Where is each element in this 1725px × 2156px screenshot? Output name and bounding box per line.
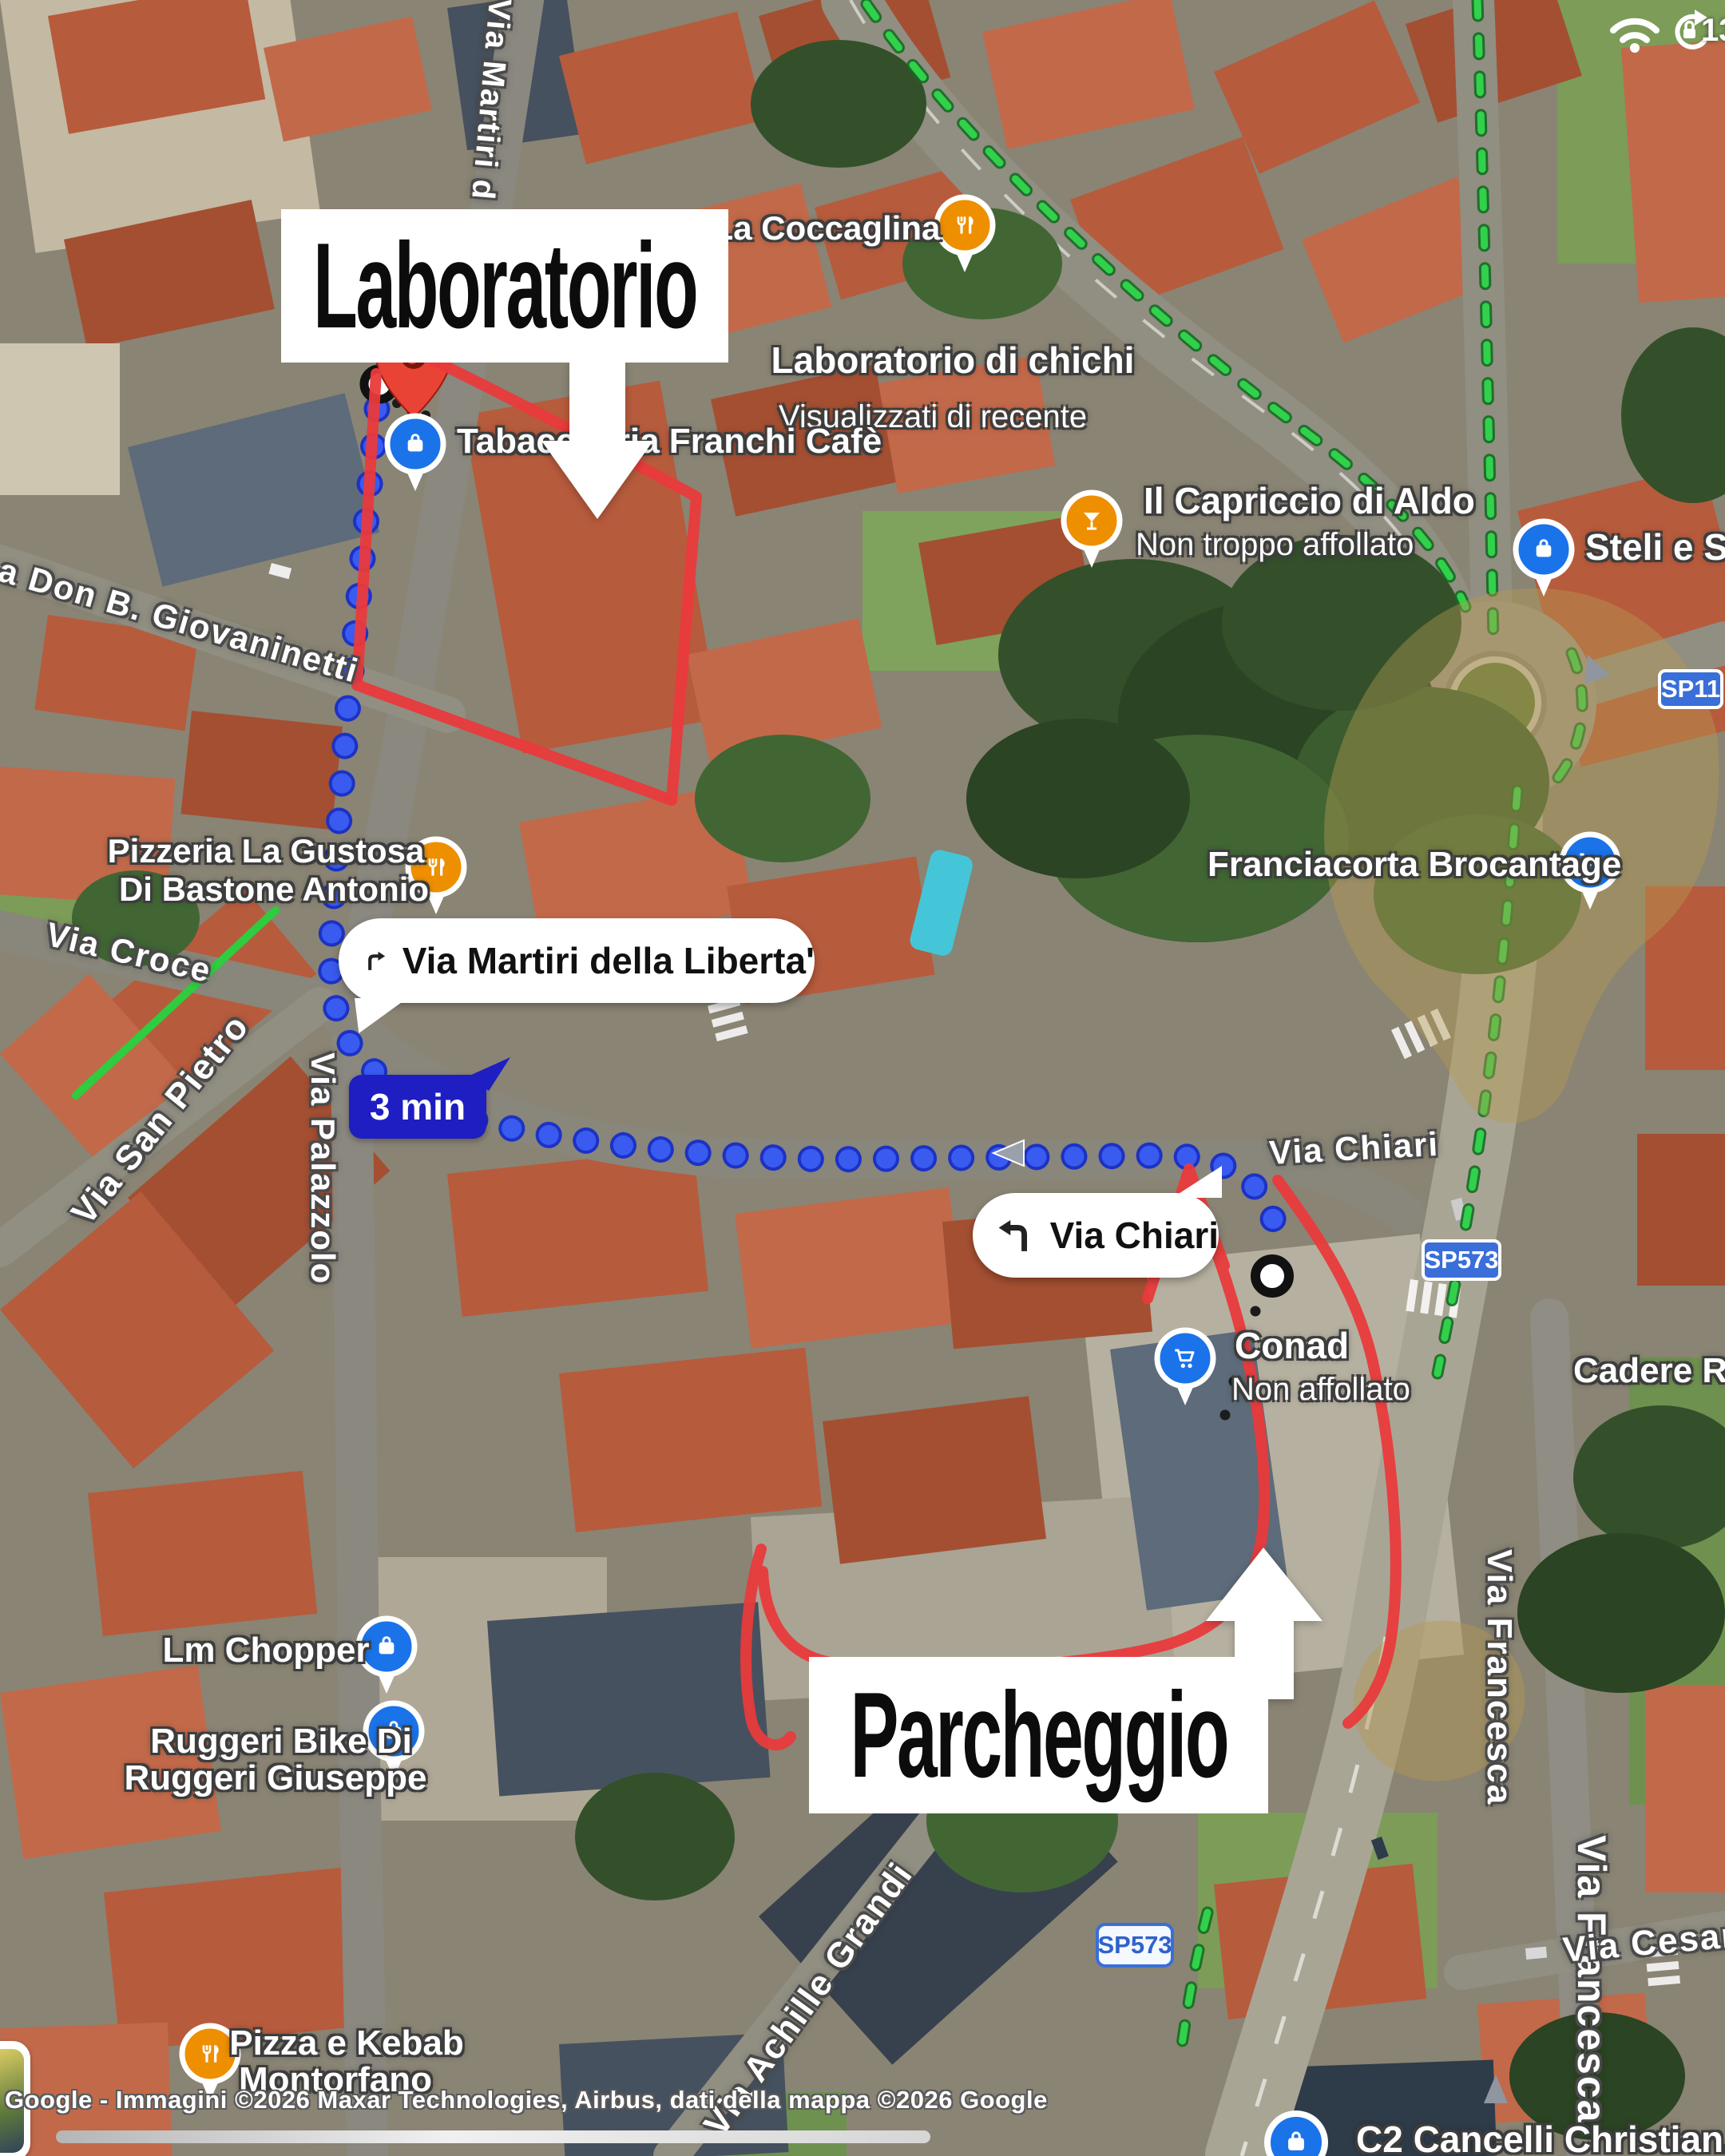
battery-percent: 13	[1701, 13, 1725, 49]
laboratorio-label-box: Laboratorio	[281, 209, 728, 363]
poi-lm-chopper[interactable]: Lm Chopper	[162, 1631, 369, 1671]
road-shield-sp11: SP11	[1658, 669, 1723, 709]
street-via-francesca-1: Via Francesca	[1479, 1549, 1519, 1805]
home-indicator[interactable]	[56, 2130, 930, 2143]
wifi-icon	[1613, 22, 1656, 53]
street-via-francesca-2: Via Francesca	[1568, 1835, 1615, 2123]
laboratorio-label: Laboratorio	[313, 216, 696, 356]
poi-pizzeria-line2[interactable]: Di Bastone Antonio	[119, 870, 429, 909]
road-arrow-south	[1484, 2075, 1508, 2103]
poi-franciacorta[interactable]: Franciacorta Brocantage	[1207, 845, 1621, 885]
street-via-palazzolo: Via Palazzolo	[303, 1052, 342, 1285]
poi-conad[interactable]: Conad	[1235, 1324, 1349, 1367]
poi-capriccio[interactable]: Il Capriccio di Aldo	[1144, 479, 1475, 522]
poi-steli-e-stili[interactable]: Steli e Stili	[1585, 525, 1725, 569]
shopping-icon-c2-cancelli[interactable]	[1260, 2106, 1332, 2156]
parcheggio-label: Parcheggio	[850, 1666, 1227, 1805]
road-shield-sp573-bottom: SP573	[1096, 1923, 1174, 1968]
instruction-chip-turn-left[interactable]: Via Chiari	[973, 1193, 1219, 1278]
poi-cadere-robe[interactable]: Cadere Robe	[1573, 1351, 1725, 1391]
poi-c2-cancelli[interactable]: C2 Cancelli Christian.	[1356, 2118, 1725, 2156]
shopping-pin-steli[interactable]	[1508, 513, 1580, 603]
poi-capriccio-status: Non troppo affollato	[1136, 527, 1414, 563]
satellite-map[interactable]: Via Martiri d a Don B. Giovaninetti Via …	[0, 0, 1725, 2156]
bar-pin-capriccio[interactable]	[1056, 485, 1128, 574]
poi-ruggeri-line2[interactable]: Ruggeri Giuseppe	[125, 1758, 427, 1798]
poi-la-coccaglina[interactable]: La Coccaglina	[713, 209, 941, 248]
poi-pizza-kebab-line1[interactable]: Pizza e Kebab	[229, 2023, 463, 2063]
shopping-pin-tabaccheria[interactable]	[379, 408, 451, 497]
poi-ruggeri-line1[interactable]: Ruggeri Bike Di	[150, 1722, 412, 1762]
turn-right-icon	[364, 939, 387, 982]
duration-text: 3 min	[370, 1085, 466, 1128]
supermarket-pin-conad[interactable]	[1149, 1322, 1221, 1412]
route-end-ring	[1255, 1259, 1289, 1293]
poi-conad-status: Non affollato	[1231, 1372, 1410, 1408]
status-bar: 13	[1605, 6, 1725, 54]
duration-chip[interactable]: 3 min	[349, 1075, 486, 1139]
map-attribution: Google - Immagini ©2026 Maxar Technologi…	[5, 2086, 1048, 2114]
poi-pizzeria-line1[interactable]: Pizzeria La Gustosa	[108, 832, 425, 870]
instruction-chip-turn-right[interactable]: Via Martiri della Liberta'	[339, 918, 815, 1003]
instruction-text-right: Via Martiri della Liberta'	[402, 939, 815, 982]
parcheggio-label-box: Parcheggio	[809, 1657, 1268, 1813]
route-and-annotations	[0, 0, 1725, 2156]
laboratorio-arrow	[527, 359, 671, 521]
road-shield-sp573-mid: SP573	[1422, 1239, 1501, 1281]
road-arrow-roundabout	[1584, 655, 1610, 684]
instruction-text-left: Via Chiari	[1050, 1214, 1219, 1257]
turn-left-icon	[997, 1214, 1034, 1257]
poi-laboratorio-di-chichi[interactable]: Laboratorio di chichi	[771, 339, 1135, 382]
